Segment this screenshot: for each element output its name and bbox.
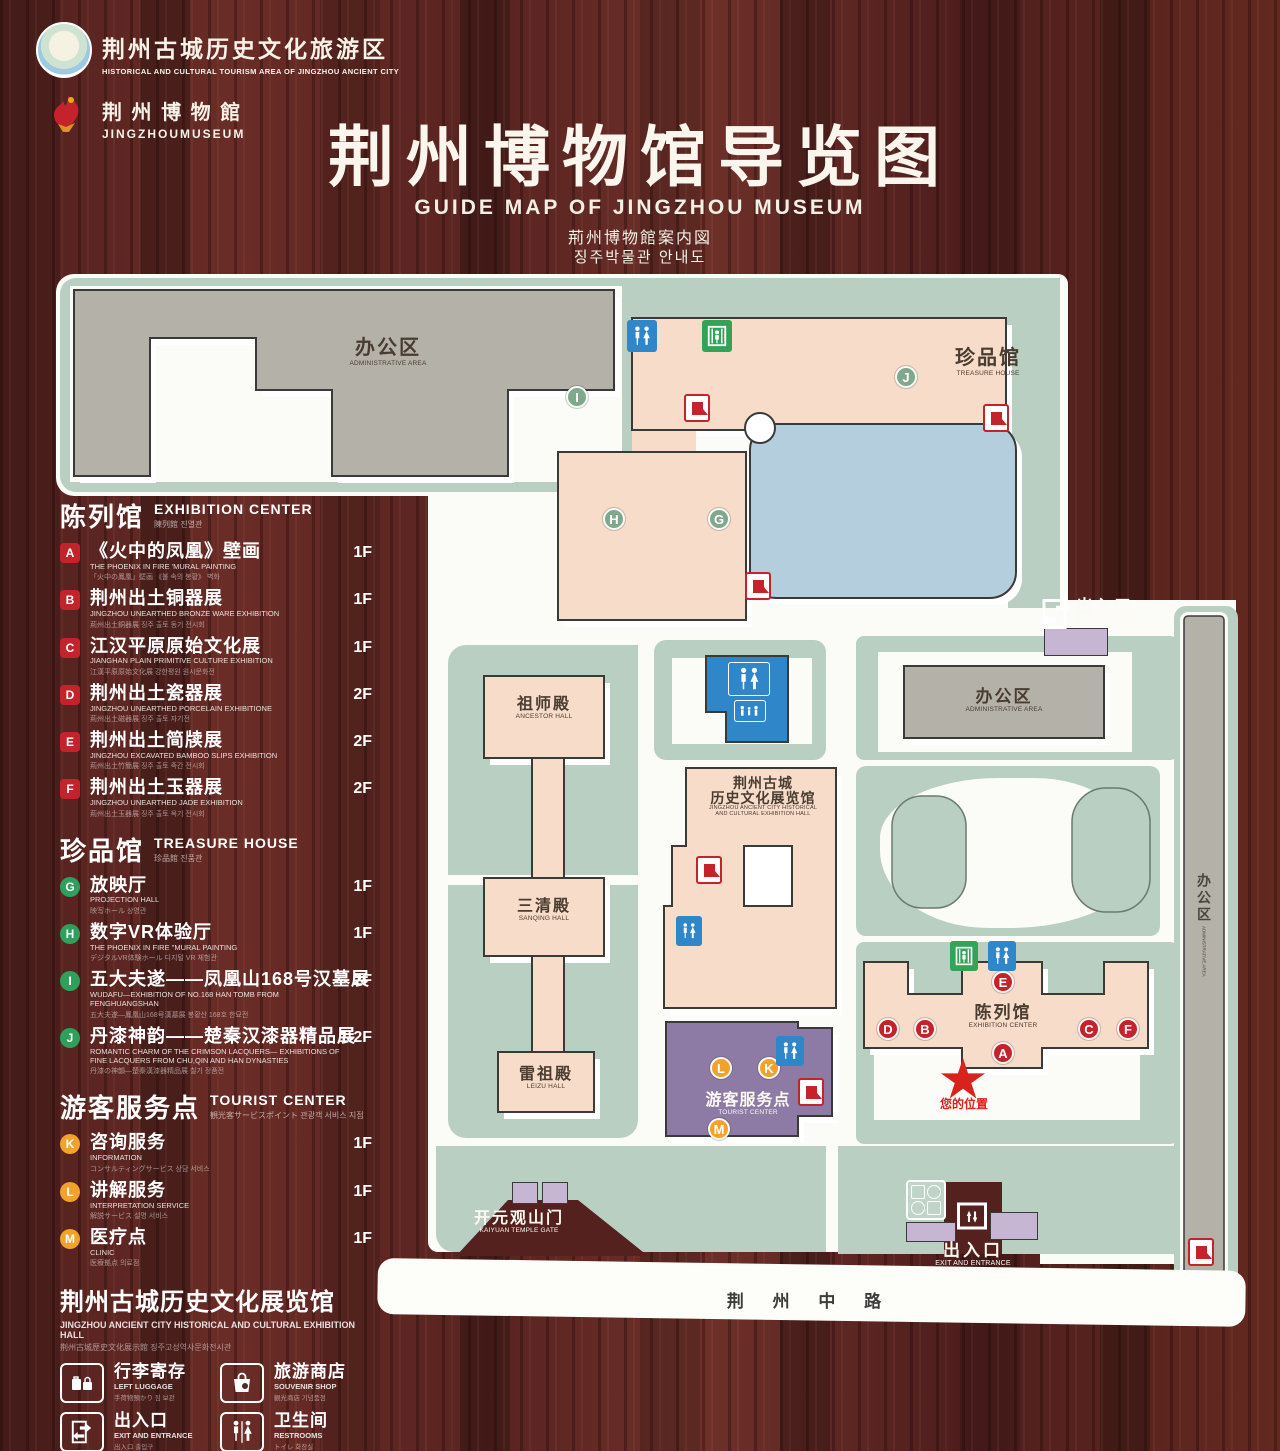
legend-section-treasure-header: 珍品馆 TREASURE HOUSE 珍品館 진품관: [60, 831, 372, 868]
legend-section-tourist-header: 游客服务点 TOURIST CENTER 観光客サービスポイント 관광객 서비스…: [60, 1088, 372, 1125]
elevator-icon: [1188, 1238, 1214, 1266]
exhibition-hall-note: 荆州古城历史文化展览馆 JINGZHOU ANCIENT CITY HISTOR…: [60, 1282, 372, 1353]
bottom-gate-left: [906, 1222, 956, 1242]
legend-item-I: I 五大夫遂——凤凰山168号汉墓展 WUDAFU—EXHIBITION OF …: [60, 970, 372, 1020]
section-title-sub: 観光客サービスポイント 관광객 서비스 지점: [210, 1110, 364, 1121]
restroom-icon: [676, 916, 702, 946]
garden-island-left: [892, 796, 966, 908]
elevator-icon: [684, 394, 710, 422]
floor-badge: 1F: [353, 925, 372, 943]
bottom-gate-right: [990, 1212, 1038, 1240]
gate-block-topright: [1044, 628, 1108, 656]
restroom-icon: [776, 1036, 804, 1066]
legend-item-B: B 荆州出土铜器展 JINGZHOU UNEARTHED BRONZE WARE…: [60, 589, 372, 629]
marker-I: I: [60, 971, 80, 991]
exit-icon: [954, 1198, 990, 1234]
tourist-center-label: 游客服务点 TOURIST CENTER: [678, 1092, 818, 1116]
road-label: 荆 州 中 路: [700, 1287, 920, 1312]
legend-item-E: E 荆州出土简牍展 JINGZHOU EXCAVATED BAMBOO SLIP…: [60, 731, 372, 771]
section-title-sub: 珍品館 진품관: [154, 853, 299, 864]
elevator-icon: [745, 572, 771, 600]
guide-map-poster: 荆州古城历史文化旅游区 HISTORICAL AND CULTURAL TOUR…: [0, 0, 1280, 1451]
restroom-icon: [988, 941, 1016, 971]
section-title: 陈列馆: [60, 497, 144, 534]
history-exhibition-hall-label: 荆州古城 历史文化展览馆 JINGZHOU ANCIENT CITY HISTO…: [688, 776, 838, 818]
map-marker-F: F: [1117, 1018, 1139, 1040]
family-restroom-icon: [734, 700, 766, 722]
marker-A: A: [60, 543, 80, 563]
legend-item-M: M 医疗点 CLINIC 医療拠点 의료점 1F: [60, 1228, 372, 1268]
legend-souvenir-shop: 旅游商店 SOUVENIR SHOP 観光商店 기념품점: [220, 1363, 380, 1412]
floor-badge: 2F: [353, 780, 372, 798]
floor-badge: 1F: [353, 878, 372, 896]
treasure-house-label: 珍品馆 TREASURE HOUSE: [918, 348, 1058, 377]
floor-badge: 1F: [353, 544, 372, 562]
marker-E: E: [60, 732, 80, 752]
legend-exit-entrance: 出入口 EXIT AND ENTRANCE 出入口 출입구: [60, 1412, 220, 1451]
restroom-icon: [728, 662, 770, 696]
kaiyuan-gate-left: [512, 1182, 538, 1204]
marker-K: K: [60, 1134, 80, 1154]
left-luggage-icon: [60, 1363, 104, 1403]
elevator-icon: [696, 856, 722, 884]
map-marker-M: M: [708, 1118, 730, 1140]
marker-D: D: [60, 685, 80, 705]
legend-section-exhibition-header: 陈列馆 EXHIBITION CENTER 陳列館 진열관: [60, 497, 372, 534]
section-title: 游客服务点: [60, 1088, 200, 1125]
floor-badge: 1F: [353, 1135, 372, 1153]
restroom-icon: [906, 1180, 946, 1220]
garden-island-right: [1072, 788, 1150, 912]
map-marker-J: J: [895, 366, 917, 388]
admin-area-label-right: 办公区 ADMINISTRATIVE AREA: [934, 688, 1074, 713]
sanqing-hall-label: 三清殿 SANQING HALL: [474, 898, 614, 922]
map-marker-E: E: [992, 971, 1014, 993]
legend-item-L: L 讲解服务 INTERPRETATION SERVICE 解説サービス 설명 …: [60, 1181, 372, 1221]
corridor-1: [532, 758, 564, 882]
section-title-en: EXHIBITION CENTER: [154, 501, 313, 517]
legend-restrooms: 卫生间 RESTROOMS トイレ 화장실: [220, 1412, 380, 1451]
exit-label-topright: 出入口 EXIT AND ENTRANCE: [1076, 598, 1186, 624]
section-title: 珍品馆: [60, 831, 144, 868]
floor-badge: 1F: [353, 639, 372, 657]
floor-badge: 1F: [353, 591, 372, 609]
corridor-2: [532, 954, 564, 1054]
marker-B: B: [60, 590, 80, 610]
legend-icon-grid: 行李寄存 LEFT LUGGAGE 手荷物預かり 짐 보관 旅游商店 SOUVE…: [60, 1363, 372, 1451]
elevator-icon: [798, 1078, 824, 1106]
legend-item-A: A 《火中的凤凰》壁画 THE PHOENIX IN FIRE 'MURAL P…: [60, 542, 372, 582]
floor-badge: 2F: [353, 972, 372, 990]
map-marker-C: C: [1078, 1018, 1100, 1040]
floor-badge: 2F: [353, 686, 372, 704]
section-title-en: TOURIST CENTER: [210, 1092, 364, 1108]
marker-L: L: [60, 1182, 80, 1202]
leizu-hall-label: 雷祖殿 LEIZU HALL: [476, 1066, 616, 1090]
legend-item-J: J 丹漆神韵——楚秦汉漆器精品展 ROMANTIC CHARM OF THE C…: [60, 1027, 372, 1077]
floor-badge: 1F: [353, 1183, 372, 1201]
legend-item-G: G 放映厅 PROJECTION HALL 映写ホール 상영관 1F: [60, 876, 372, 916]
marker-M: M: [60, 1229, 80, 1249]
floor-badge: 1-2F: [339, 1029, 372, 1047]
map-marker-H: H: [603, 508, 625, 530]
map-marker-A: A: [992, 1042, 1014, 1064]
legend-item-K: K 咨询服务 INFORMATION コンサルティングサービス 상담 서비스 1…: [60, 1133, 372, 1173]
map-marker-I: I: [566, 386, 588, 408]
ancestor-hall-label: 祖师殿 ANCESTOR HALL: [474, 696, 614, 720]
legend-item-H: H 数字VR体验厅 THE PHOENIX IN FIRE "MURAL PAI…: [60, 923, 372, 963]
marker-H: H: [60, 924, 80, 944]
map-marker-B: B: [914, 1018, 936, 1040]
admin-area-label-topleft: 办公区 ADMINISTRATIVE AREA: [318, 338, 458, 367]
restrooms-icon: [220, 1412, 264, 1451]
floor-badge: 1F: [353, 1230, 372, 1248]
admin-strip-label: 办公区 ADMINISTRATIVE AREA: [1186, 830, 1222, 1020]
map-marker-L: L: [710, 1057, 732, 1079]
floor-badge: 2F: [353, 733, 372, 751]
legend-left-luggage: 行李寄存 LEFT LUGGAGE 手荷物預かり 짐 보관: [60, 1363, 220, 1412]
legend-item-F: F 荆州出土玉器展 JINGZHOU UNEARTHED JADE EXHIBI…: [60, 778, 372, 818]
marker-C: C: [60, 638, 80, 658]
kaiyuan-gate-label: 开元观山门 KAIYUAN TEMPLE GATE: [436, 1210, 602, 1234]
legend-item-C: C 江汉平原原始文化展 JIANGHAN PLAIN PRIMITIVE CUL…: [60, 637, 372, 677]
souvenir-shop-icon: [220, 1363, 264, 1403]
kaiyuan-gate-right: [542, 1182, 568, 1204]
accessible-elevator-icon: [950, 941, 978, 971]
section-title-sub: 陳列館 진열관: [154, 519, 313, 530]
marker-G: G: [60, 877, 80, 897]
accessible-elevator-icon: [702, 320, 732, 352]
elevator-icon: [983, 404, 1009, 432]
treasure-house-left-wing: [558, 452, 746, 620]
legend-panel: 陈列馆 EXHIBITION CENTER 陳列館 진열관 A 《火中的凤凰》壁…: [60, 497, 372, 1451]
treasure-house-lake: [750, 424, 1016, 598]
exit-label-bottom: 出入口 EXIT AND ENTRANCE: [908, 1242, 1038, 1268]
marker-J: J: [60, 1028, 80, 1048]
exhibition-center-label: 陈列馆 EXHIBITION CENTER: [933, 1004, 1073, 1029]
marker-F: F: [60, 779, 80, 799]
exit-entrance-icon: [60, 1412, 104, 1451]
legend-item-D: D 荆州出土瓷器展 JINGZHOU UNEARTHED PORCELAIN E…: [60, 684, 372, 724]
map-marker-D: D: [877, 1018, 899, 1040]
map-marker-G: G: [708, 508, 730, 530]
exit-icon: [1038, 596, 1074, 632]
your-location-label: 您的位置: [928, 1098, 1000, 1111]
section-title-en: TREASURE HOUSE: [154, 835, 299, 851]
lake-round-feature: [745, 413, 775, 443]
restroom-icon: [627, 320, 657, 352]
